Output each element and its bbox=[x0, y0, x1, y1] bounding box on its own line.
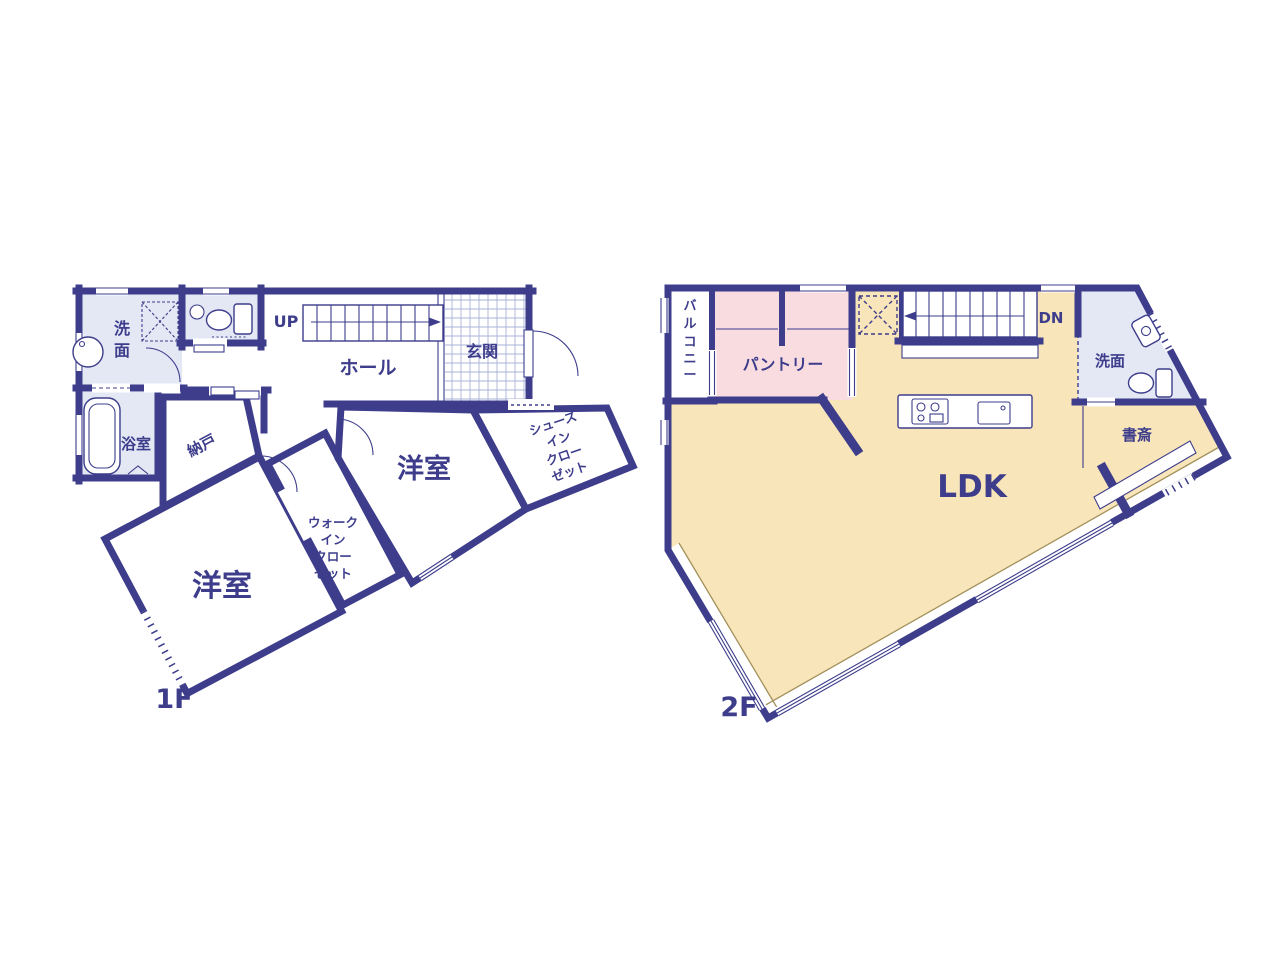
stairs-up-1f bbox=[303, 305, 443, 341]
svg-text:クロー: クロー bbox=[314, 549, 352, 564]
svg-text:イン: イン bbox=[320, 532, 345, 547]
label-floor-2f: 2F bbox=[720, 692, 757, 723]
label-stairs-down: DN bbox=[1038, 309, 1063, 327]
svg-text:ゼット: ゼット bbox=[314, 566, 352, 581]
toilet-2f-bowl-icon bbox=[1129, 373, 1154, 393]
label-floor-1f: 1F bbox=[155, 684, 192, 715]
label-bedroom-b-1f: 洋室 bbox=[397, 453, 451, 485]
label-balcony-2f: バ ル コ ニ ー bbox=[683, 299, 696, 383]
label-shoes-closet-1f: シューズ イン クロー ゼット bbox=[527, 408, 596, 487]
stairs-landing-counter bbox=[902, 345, 1038, 358]
label-pantry-2f: パントリー bbox=[743, 355, 824, 374]
kitchen-island bbox=[898, 395, 1032, 428]
svg-text:ー: ー bbox=[683, 368, 696, 383]
toilet-2f-tank-icon bbox=[1156, 369, 1172, 397]
label-entrance-1f: 玄関 bbox=[466, 342, 498, 361]
room-storage-1f bbox=[163, 397, 259, 507]
label-washroom-1f-char1: 洗 bbox=[114, 319, 130, 338]
toilet-tank-icon bbox=[234, 304, 252, 334]
walkin-closet-door-gap bbox=[282, 490, 308, 539]
svg-text:ニ: ニ bbox=[683, 352, 696, 367]
label-study-2f: 書斎 bbox=[1122, 426, 1152, 444]
label-washroom-1f-char2: 面 bbox=[114, 341, 130, 360]
pantry-door bbox=[850, 348, 855, 397]
label-bedroom-a-1f: 洋室 bbox=[192, 569, 252, 604]
floor-plan-2f: バ ル コ ニ ー パントリー DN 洗面 書斎 LDK 2F bbox=[661, 285, 1227, 723]
svg-text:バ: バ bbox=[683, 299, 696, 314]
label-storage-1f: 納戸 bbox=[184, 431, 219, 461]
entrance-door bbox=[524, 330, 578, 377]
floor-plan-page: 洗 面 浴室 UP ホール 玄関 納戸 洋室 洋室 ウォーク イン クロー ゼッ… bbox=[0, 0, 1280, 960]
label-ldk-2f: LDK bbox=[937, 469, 1007, 505]
floor-plan-canvas: 洗 面 浴室 UP ホール 玄関 納戸 洋室 洋室 ウォーク イン クロー ゼッ… bbox=[0, 0, 1280, 960]
bedroom-a-window-band bbox=[143, 611, 182, 684]
svg-text:ウォーク: ウォーク bbox=[308, 515, 358, 530]
svg-text:ル: ル bbox=[683, 317, 696, 332]
label-washroom-2f: 洗面 bbox=[1095, 352, 1125, 370]
toilet-bowl-icon bbox=[207, 310, 232, 330]
stairs-down-2f bbox=[902, 291, 1038, 358]
washbasin-icon bbox=[73, 337, 103, 367]
balcony-window bbox=[710, 350, 715, 396]
label-stairs-up: UP bbox=[274, 312, 299, 331]
floor-plan-1f: 洗 面 浴室 UP ホール 玄関 納戸 洋室 洋室 ウォーク イン クロー ゼッ… bbox=[73, 288, 633, 715]
label-bathroom-1f: 浴室 bbox=[121, 435, 151, 453]
sink-icon bbox=[978, 402, 1010, 424]
toilet-hand-basin-icon bbox=[190, 305, 204, 319]
svg-text:コ: コ bbox=[683, 335, 696, 350]
label-hall-1f: ホール bbox=[339, 357, 396, 379]
